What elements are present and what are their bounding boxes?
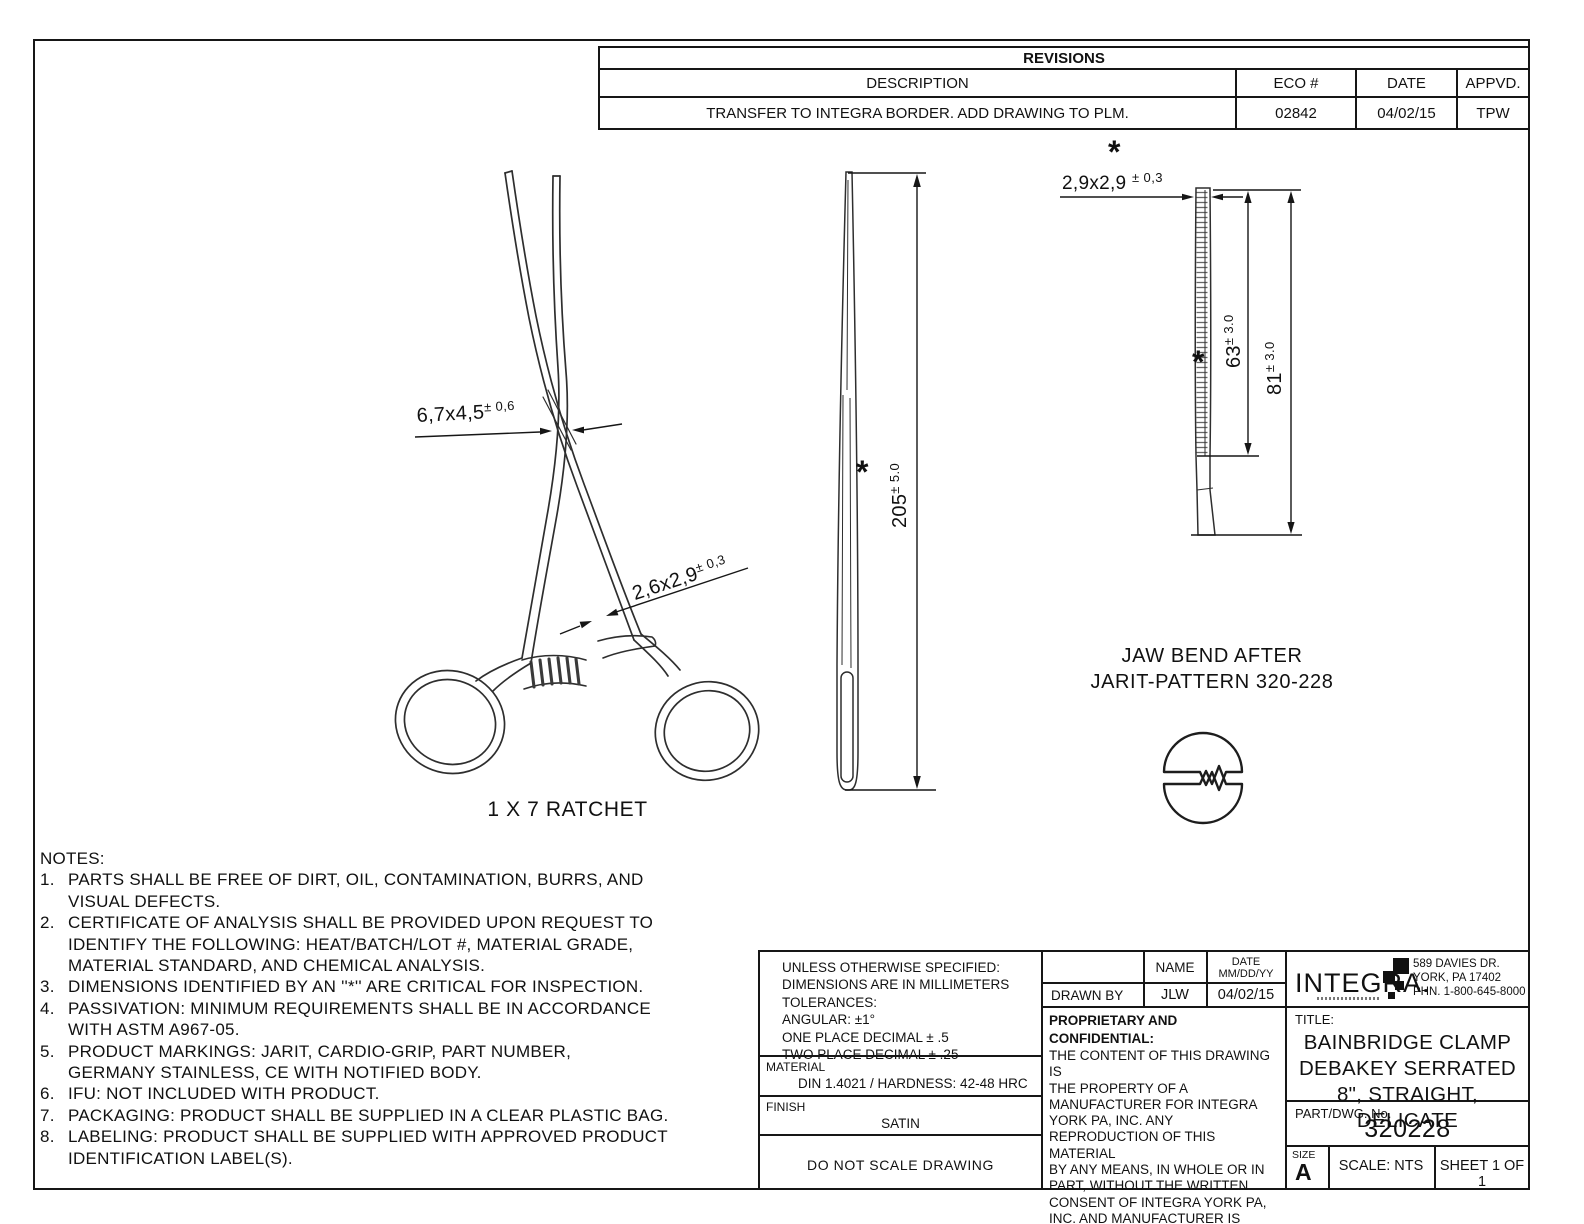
part-number-value: 320228 [1287,1115,1528,1144]
logo-square-icon [1393,958,1409,974]
title-row: TITLE: BAINBRIDGE CLAMP DEBAKEY SERRATED… [1287,1008,1528,1102]
critical-mark-serration: * [1192,352,1204,372]
note-item-5: 5.PRODUCT MARKINGS: JARIT, CARDIO-GRIP, … [40,1041,700,1084]
do-not-scale-note: DO NOT SCALE DRAWING [760,1157,1041,1173]
revisions-title: REVISIONS [600,48,1528,70]
jaw-bend-note-line1: JAW BEND AFTER [1042,645,1382,668]
integra-logo: INTEGRA. [1295,968,1431,999]
title-label: TITLE: [1295,1012,1334,1027]
revisions-header-description: DESCRIPTION [600,70,1237,96]
titleblock-middle-column: NAME DATE MM/DD/YY DRAWN BY JLW 04/02/15… [1041,950,1287,1190]
date-header: DATE MM/DD/YY [1208,956,1284,980]
proprietary-heading: PROPRIETARY AND CONFIDENTIAL: [1049,1013,1177,1046]
note-text: PACKAGING: PRODUCT SHALL BE SUPPLIED IN … [68,1105,668,1126]
dimension-jaw-overall: 81± 3.0 [1262,341,1287,395]
dimension-overall-length: 205± 5.0 [887,463,912,528]
note-text: PRODUCT MARKINGS: JARIT, CARDIO-GRIP, PA… [68,1041,571,1084]
note-text: DIMENSIONS IDENTIFIED BY AN ''*'' ARE CR… [68,976,643,997]
note-text: PARTS SHALL BE FREE OF DIRT, OIL, CONTAM… [68,869,644,912]
revisions-table: REVISIONS DESCRIPTION ECO # DATE APPVD. … [598,46,1530,130]
revisions-header-appvd: APPVD. [1458,70,1528,96]
note-item-2: 2.CERTIFICATE OF ANALYSIS SHALL BE PROVI… [40,912,700,976]
critical-mark-length: * [856,462,868,482]
note-number: 7. [40,1105,68,1126]
revision-description: TRANSFER TO INTEGRA BORDER. ADD DRAWING … [600,98,1237,128]
dimension-jaw-tip: 2,9x2,9 ± 0,3 [1062,170,1163,195]
notes-heading: NOTES: [40,848,700,869]
scale-value: SCALE: NTS [1330,1158,1432,1174]
part-number-row: PART/DWG. No. 320228 [1287,1102,1528,1147]
logo-tagline [1317,997,1379,1000]
note-number: 2. [40,912,68,976]
title-line-1: BAINBRIDGE CLAMP [1287,1030,1528,1056]
jaw-bend-note-line2: JARIT-PATTERN 320-228 [1042,671,1382,694]
revisions-header-date: DATE [1357,70,1458,96]
tolerances-note: UNLESS OTHERWISE SPECIFIED: DIMENSIONS A… [760,952,1041,1063]
note-number: 3. [40,976,68,997]
note-item-8: 8.LABELING: PRODUCT SHALL BE SUPPLIED WI… [40,1126,700,1169]
drawn-by-name: JLW [1145,987,1205,1003]
drawn-by-date: 04/02/15 [1208,987,1284,1003]
titleblock-right-column: INTEGRA. 589 DAVIES DR. YORK, PA 17402 P… [1285,950,1530,1190]
note-text: LABELING: PRODUCT SHALL BE SUPPLIED WITH… [68,1126,668,1169]
revisions-header-eco: ECO # [1237,70,1357,96]
revision-approved-by: TPW [1458,98,1528,128]
revision-eco-number: 02842 [1237,98,1357,128]
logo-square-icon [1388,992,1395,999]
title-line-2: DEBAKEY SERRATED [1287,1056,1528,1082]
proprietary-body: THE CONTENT OF THIS DRAWING IS THE PROPE… [1049,1048,1283,1224]
drawn-by-row: DRAWN BY JLW 04/02/15 [1043,984,1285,1008]
revision-date: 04/02/15 [1357,98,1458,128]
revisions-header-row: DESCRIPTION ECO # DATE APPVD. [600,70,1528,98]
engineering-drawing-sheet: REVISIONS DESCRIPTION ECO # DATE APPVD. … [0,0,1584,1224]
material-value: DIN 1.4021 / HARDNESS: 42-48 HRC [798,1076,1028,1091]
size-value: A [1295,1159,1312,1186]
revisions-data-row: TRANSFER TO INTEGRA BORDER. ADD DRAWING … [600,98,1528,128]
dimension-jaw-box: 6,7x4,5± 0,6 [416,398,516,428]
signature-header-row: NAME DATE MM/DD/YY [1043,952,1285,984]
dimension-serration-length: 63± 3.0 [1221,314,1246,368]
note-item-7: 7.PACKAGING: PRODUCT SHALL BE SUPPLIED I… [40,1105,700,1126]
ratchet-caption: 1 X 7 RATCHET [460,798,675,822]
name-header: NAME [1145,960,1205,975]
note-item-3: 3.DIMENSIONS IDENTIFIED BY AN ''*'' ARE … [40,976,700,997]
note-text: CERTIFICATE OF ANALYSIS SHALL BE PROVIDE… [68,912,653,976]
note-number: 6. [40,1083,68,1104]
note-number: 4. [40,998,68,1041]
notes-block: NOTES: 1.PARTS SHALL BE FREE OF DIRT, OI… [40,848,700,1169]
note-item-4: 4.PASSIVATION: MINIMUM REQUIREMENTS SHAL… [40,998,700,1041]
finish-label: FINISH [766,1100,805,1114]
note-number: 1. [40,869,68,912]
proprietary-notice: PROPRIETARY AND CONFIDENTIAL: THE CONTEN… [1049,1012,1283,1224]
note-number: 5. [40,1041,68,1084]
material-label: MATERIAL [766,1060,825,1074]
note-item-1: 1.PARTS SHALL BE FREE OF DIRT, OIL, CONT… [40,869,700,912]
titleblock-left-column: UNLESS OTHERWISE SPECIFIED: DIMENSIONS A… [758,950,1043,1190]
note-text: PASSIVATION: MINIMUM REQUIREMENTS SHALL … [68,998,651,1041]
logo-square-icon [1395,981,1404,990]
finish-value: SATIN [760,1116,1041,1131]
note-number: 8. [40,1126,68,1169]
drawn-by-label: DRAWN BY [1051,988,1123,1003]
company-address: 589 DAVIES DR. YORK, PA 17402 PHN. 1-800… [1413,958,1526,999]
critical-mark-jaw-tip: * [1108,142,1120,162]
size-scale-sheet-row: SIZE A SCALE: NTS SHEET 1 OF 1 [1287,1147,1528,1188]
note-item-6: 6.IFU: NOT INCLUDED WITH PRODUCT. [40,1083,700,1104]
logo-square-icon [1383,971,1395,983]
sheet-value: SHEET 1 OF 1 [1436,1158,1528,1190]
company-row: INTEGRA. 589 DAVIES DR. YORK, PA 17402 P… [1287,952,1528,1008]
note-text: IFU: NOT INCLUDED WITH PRODUCT. [68,1083,380,1104]
